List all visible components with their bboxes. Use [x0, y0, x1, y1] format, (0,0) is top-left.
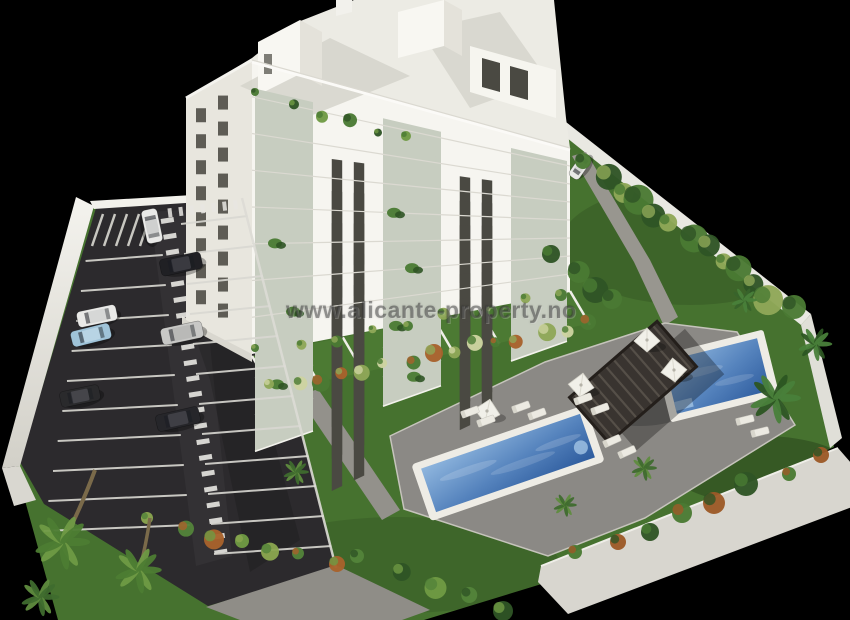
site-render — [0, 0, 850, 620]
render-stage: www.alicante-property.no — [0, 0, 850, 620]
